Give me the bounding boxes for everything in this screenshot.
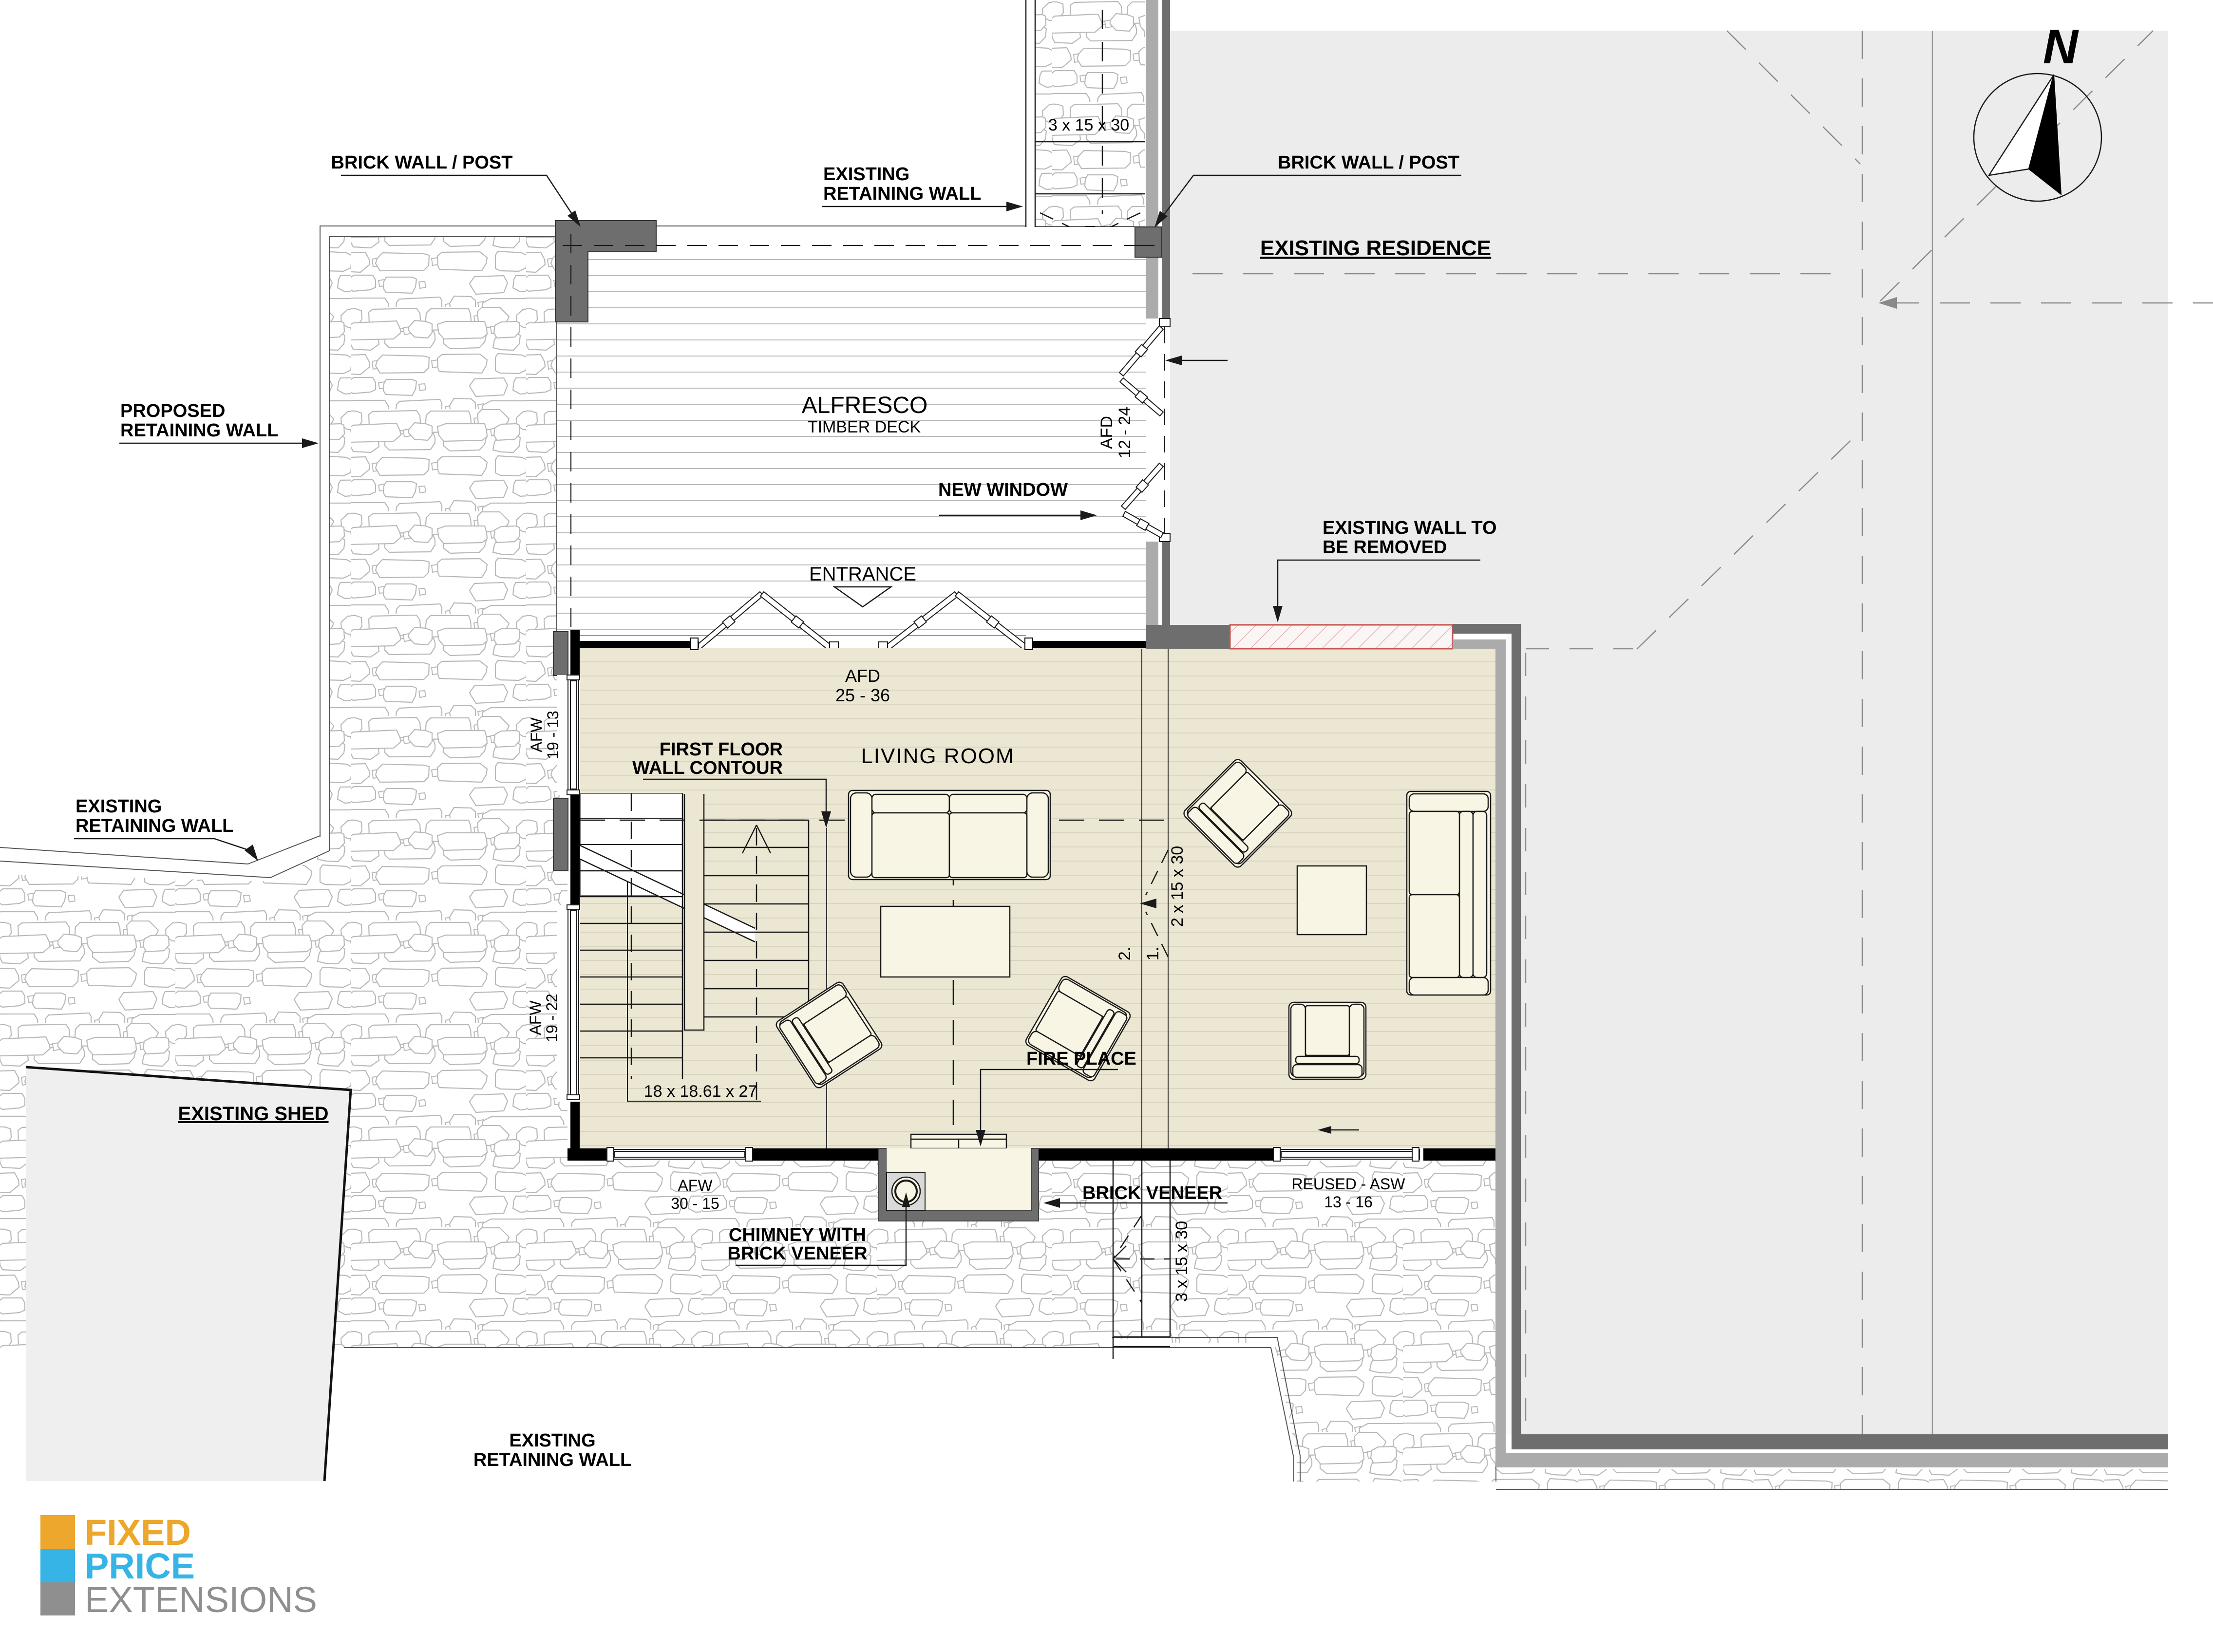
svg-text:BRICK WALL / POST: BRICK WALL / POST	[331, 152, 513, 173]
svg-text:FIRE PLACE: FIRE PLACE	[1026, 1049, 1136, 1069]
svg-text:2.: 2.	[1116, 947, 1134, 960]
svg-text:AFW: AFW	[528, 717, 545, 752]
svg-text:EXISTING WALL TO: EXISTING WALL TO	[1323, 518, 1497, 538]
svg-text:13 - 16: 13 - 16	[1324, 1193, 1373, 1211]
svg-text:AFW: AFW	[527, 1000, 544, 1035]
svg-text:NEW WINDOW: NEW WINDOW	[938, 480, 1068, 500]
svg-text:18 x 18.61 x 27: 18 x 18.61 x 27	[644, 1082, 757, 1101]
svg-text:EXISTING: EXISTING	[509, 1430, 595, 1451]
svg-text:BRICK WALL / POST: BRICK WALL / POST	[1278, 152, 1459, 173]
svg-text:EXTENSIONS: EXTENSIONS	[85, 1579, 317, 1620]
svg-text:RETAINING WALL: RETAINING WALL	[823, 184, 981, 204]
svg-text:12 - 24: 12 - 24	[1116, 407, 1134, 458]
svg-text:19 - 13: 19 - 13	[544, 711, 562, 759]
svg-text:AFD: AFD	[845, 666, 880, 686]
svg-text:1.: 1.	[1144, 947, 1162, 960]
svg-text:CHIMNEY WITH: CHIMNEY WITH	[729, 1225, 866, 1245]
svg-text:LIVING ROOM: LIVING ROOM	[861, 744, 1014, 768]
svg-text:FIRST FLOOR: FIRST FLOOR	[660, 739, 783, 760]
svg-text:RETAINING WALL: RETAINING WALL	[76, 816, 233, 836]
svg-text:AFD: AFD	[1097, 416, 1116, 449]
svg-text:3 x 15 x 30: 3 x 15 x 30	[1048, 116, 1129, 134]
svg-text:ALFRESCO: ALFRESCO	[802, 393, 928, 418]
svg-text:25 - 36: 25 - 36	[835, 685, 890, 705]
svg-text:RETAINING WALL: RETAINING WALL	[473, 1450, 631, 1470]
svg-text:AFW: AFW	[678, 1177, 713, 1194]
svg-text:WALL CONTOUR: WALL CONTOUR	[632, 758, 783, 778]
svg-text:3 x 15 x 30: 3 x 15 x 30	[1173, 1221, 1191, 1302]
svg-text:PROPOSED: PROPOSED	[120, 401, 225, 421]
svg-text:ENTRANCE: ENTRANCE	[809, 563, 916, 585]
svg-text:BRICK VENEER: BRICK VENEER	[1082, 1183, 1222, 1203]
svg-text:30 - 15: 30 - 15	[671, 1195, 719, 1212]
svg-text:2 x 15 x 30: 2 x 15 x 30	[1168, 846, 1187, 927]
svg-text:19 - 22: 19 - 22	[543, 994, 561, 1042]
svg-text:BE REMOVED: BE REMOVED	[1323, 537, 1447, 558]
svg-text:TIMBER DECK: TIMBER DECK	[808, 418, 921, 436]
svg-text:REUSED - ASW: REUSED - ASW	[1292, 1175, 1406, 1193]
svg-text:EXISTING RESIDENCE: EXISTING RESIDENCE	[1260, 236, 1491, 260]
svg-text:N: N	[2043, 19, 2079, 74]
svg-text:BRICK VENEER: BRICK VENEER	[727, 1243, 867, 1264]
svg-text:EXISTING SHED: EXISTING SHED	[178, 1103, 329, 1125]
svg-text:EXISTING: EXISTING	[823, 164, 909, 185]
svg-text:EXISTING: EXISTING	[76, 796, 162, 817]
svg-text:RETAINING WALL: RETAINING WALL	[120, 420, 278, 441]
